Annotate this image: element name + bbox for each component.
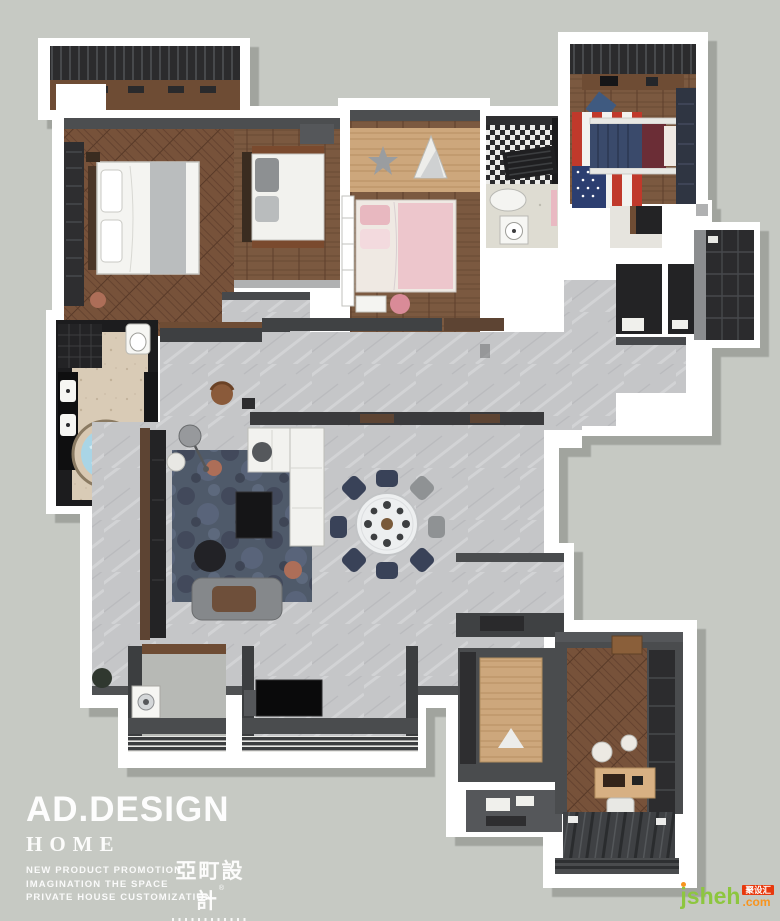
nightstand [86, 152, 100, 162]
laundry-shelf [142, 644, 226, 654]
room-kids-bedroom [342, 110, 480, 348]
room-cloakroom [50, 46, 240, 110]
dining-table [356, 493, 418, 555]
toilet-master [126, 324, 150, 354]
side-table [167, 453, 185, 471]
kids-nightstand [356, 296, 386, 312]
coffee-table [236, 492, 272, 538]
kitchen-column [456, 553, 564, 832]
designer-logo-cn: 亞町設計 [176, 860, 245, 913]
play-platform [350, 128, 480, 192]
boys-wardrobe-top [570, 44, 696, 74]
foyer-wall-top [222, 292, 310, 300]
room-master-bedroom [64, 118, 234, 336]
watermark-tld: .com [742, 896, 770, 908]
pantry [456, 553, 564, 637]
curtain-band [64, 118, 234, 129]
page: { "page": { "background": "#c6c9c3" }, "… [0, 0, 780, 910]
sink-room [466, 790, 562, 832]
kids-bed-pink [356, 200, 456, 292]
room-kids-bathroom [486, 116, 558, 248]
plant-left [92, 668, 112, 688]
washing-machine [132, 686, 160, 718]
office-cabinet-top [612, 636, 642, 654]
cloakroom-door-gap [56, 84, 106, 110]
kids-stool [390, 294, 410, 314]
designer-logo: 亞町設計® [172, 855, 248, 921]
room-boys-bedroom [570, 44, 696, 208]
bedroom-stool [90, 292, 106, 308]
pink-towels [551, 190, 557, 226]
kids-closet [342, 196, 354, 306]
brand-block: AD.DESIGN HOME NEW PRODUCT PROMOTION IMA… [26, 792, 229, 905]
shower [58, 324, 102, 368]
floorplan-rendering [0, 0, 780, 910]
office-wardrobe [649, 650, 675, 838]
balcony-tv-panel [256, 680, 322, 716]
hallway-cabinets [262, 318, 442, 331]
second-bed [242, 146, 324, 248]
watermark-badge: 聚设汇 [742, 885, 774, 896]
registered-mark: ® [219, 885, 224, 892]
armchair [192, 578, 282, 620]
kitchen-cabinets [460, 652, 476, 764]
tv-console [150, 430, 166, 638]
balcony-middle [242, 646, 418, 752]
accent-stool-2 [284, 561, 302, 579]
boys-bed [590, 118, 682, 174]
office-balcony [555, 812, 679, 874]
boys-wardrobe-side [676, 88, 696, 204]
second-bedroom-dresser [300, 124, 334, 144]
tv-wall [140, 428, 150, 640]
railing-left [128, 736, 226, 752]
room-home-office [555, 632, 683, 874]
ottoman [194, 540, 226, 572]
j-dot [681, 882, 686, 887]
office-desk [595, 768, 655, 798]
toilet [500, 216, 528, 244]
balcony-laundry [128, 644, 226, 752]
master-wardrobe [64, 142, 84, 306]
room-second-bedroom [234, 118, 340, 280]
office-stool-2 [621, 735, 637, 751]
watermark-site-name: jsheh [680, 885, 740, 908]
brand-subtitle: HOME [26, 832, 229, 857]
boys-desk [582, 74, 684, 90]
study-side-table [242, 398, 255, 409]
round-side-table [252, 442, 272, 462]
watermark: jsheh 聚设汇 .com [680, 885, 774, 909]
wardrobe-room-right [694, 230, 754, 340]
brand-name: AD.DESIGN [26, 792, 229, 827]
railing-middle [242, 736, 418, 752]
master-bed [88, 162, 199, 274]
kitchen [458, 648, 562, 782]
cloakroom-hanging-rail [50, 46, 240, 80]
office-stool-1 [592, 742, 612, 762]
bathtub-oval [490, 189, 526, 211]
floorplan-stage [0, 0, 780, 910]
